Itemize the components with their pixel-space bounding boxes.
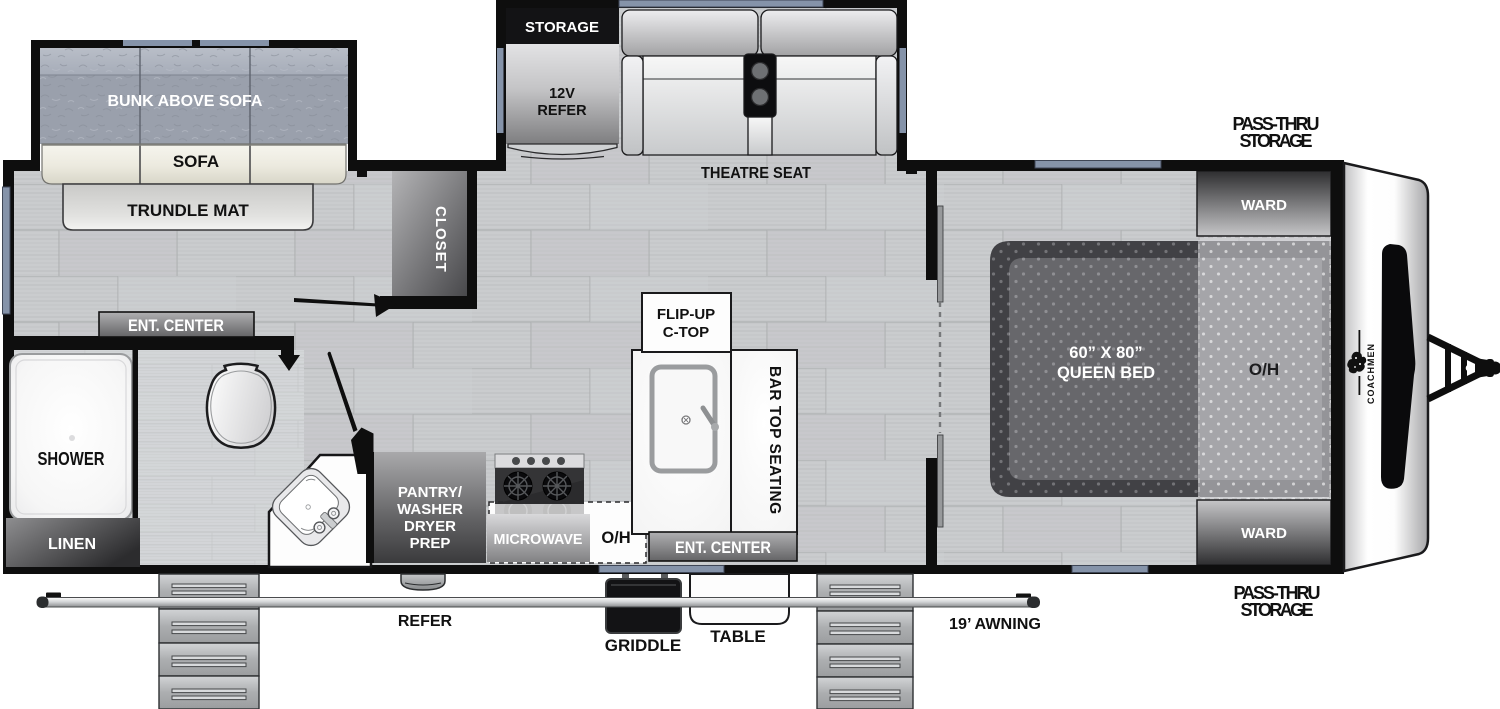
- svg-text:DRYER: DRYER: [404, 518, 456, 535]
- svg-text:STORAGE: STORAGE: [1240, 131, 1313, 151]
- svg-text:REFER: REFER: [537, 103, 587, 119]
- svg-text:CLOSET: CLOSET: [432, 206, 449, 273]
- svg-text:19’ AWNING: 19’ AWNING: [949, 616, 1041, 633]
- svg-text:WARD: WARD: [1241, 197, 1287, 214]
- svg-text:GRIDDLE: GRIDDLE: [605, 636, 682, 655]
- svg-text:ENT. CENTER: ENT. CENTER: [128, 317, 224, 335]
- svg-text:STORAGE: STORAGE: [1241, 600, 1314, 620]
- svg-text:STORAGE: STORAGE: [525, 19, 599, 36]
- svg-text:TRUNDLE MAT: TRUNDLE MAT: [127, 201, 249, 220]
- svg-text:WARD: WARD: [1241, 525, 1287, 542]
- svg-text:MICROWAVE: MICROWAVE: [494, 531, 583, 548]
- svg-text:BUNK ABOVE SOFA: BUNK ABOVE SOFA: [108, 93, 263, 110]
- svg-text:TABLE: TABLE: [710, 627, 765, 646]
- svg-text:PREP: PREP: [410, 535, 451, 552]
- svg-text:SOFA: SOFA: [173, 152, 219, 171]
- svg-text:WASHER: WASHER: [397, 501, 463, 518]
- svg-text:PANTRY/: PANTRY/: [398, 484, 463, 501]
- svg-text:COACHMEN: COACHMEN: [1366, 343, 1376, 404]
- svg-text:FLIP-UP: FLIP-UP: [657, 306, 715, 323]
- svg-text:SHOWER: SHOWER: [38, 448, 105, 469]
- svg-text:O/H: O/H: [1249, 360, 1279, 379]
- svg-text:THEATRE SEAT: THEATRE SEAT: [701, 165, 811, 182]
- svg-text:QUEEN BED: QUEEN BED: [1057, 364, 1155, 382]
- svg-text:O/H: O/H: [601, 529, 630, 547]
- svg-text:60” X 80”: 60” X 80”: [1069, 344, 1142, 362]
- svg-text:BAR TOP SEATING: BAR TOP SEATING: [766, 366, 783, 515]
- svg-text:REFER: REFER: [398, 613, 453, 630]
- svg-text:LINEN: LINEN: [48, 536, 96, 553]
- svg-text:ENT. CENTER: ENT. CENTER: [675, 539, 771, 557]
- svg-text:12V: 12V: [549, 86, 575, 102]
- svg-text:C-TOP: C-TOP: [663, 324, 709, 341]
